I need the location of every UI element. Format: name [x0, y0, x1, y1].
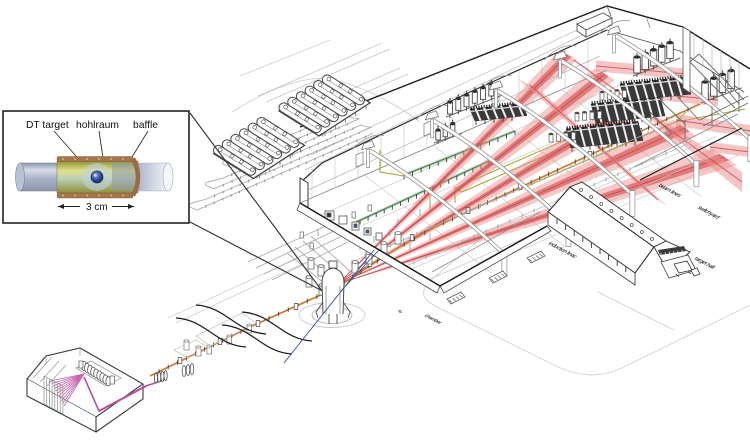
svg-text:baffle: baffle: [133, 120, 158, 131]
svg-text:DT target: DT target: [26, 120, 69, 131]
svg-text:3 cm: 3 cm: [86, 202, 108, 213]
svg-text:hohlraum: hohlraum: [76, 120, 119, 131]
